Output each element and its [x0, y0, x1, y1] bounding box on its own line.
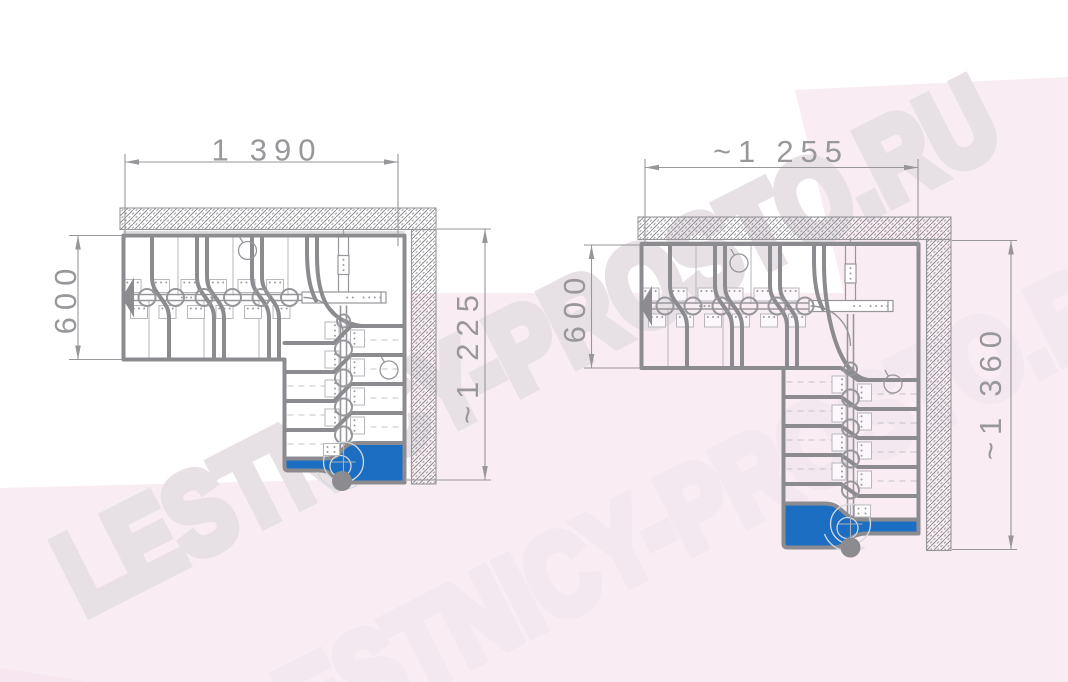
svg-text:600: 600	[48, 262, 83, 335]
svg-text:600: 600	[557, 271, 592, 344]
svg-text:1390: 1390	[212, 133, 323, 168]
svg-text:~1255: ~1255	[713, 134, 849, 169]
svg-text:~1360: ~1360	[973, 324, 1008, 460]
svg-text:~1225: ~1225	[450, 288, 485, 424]
